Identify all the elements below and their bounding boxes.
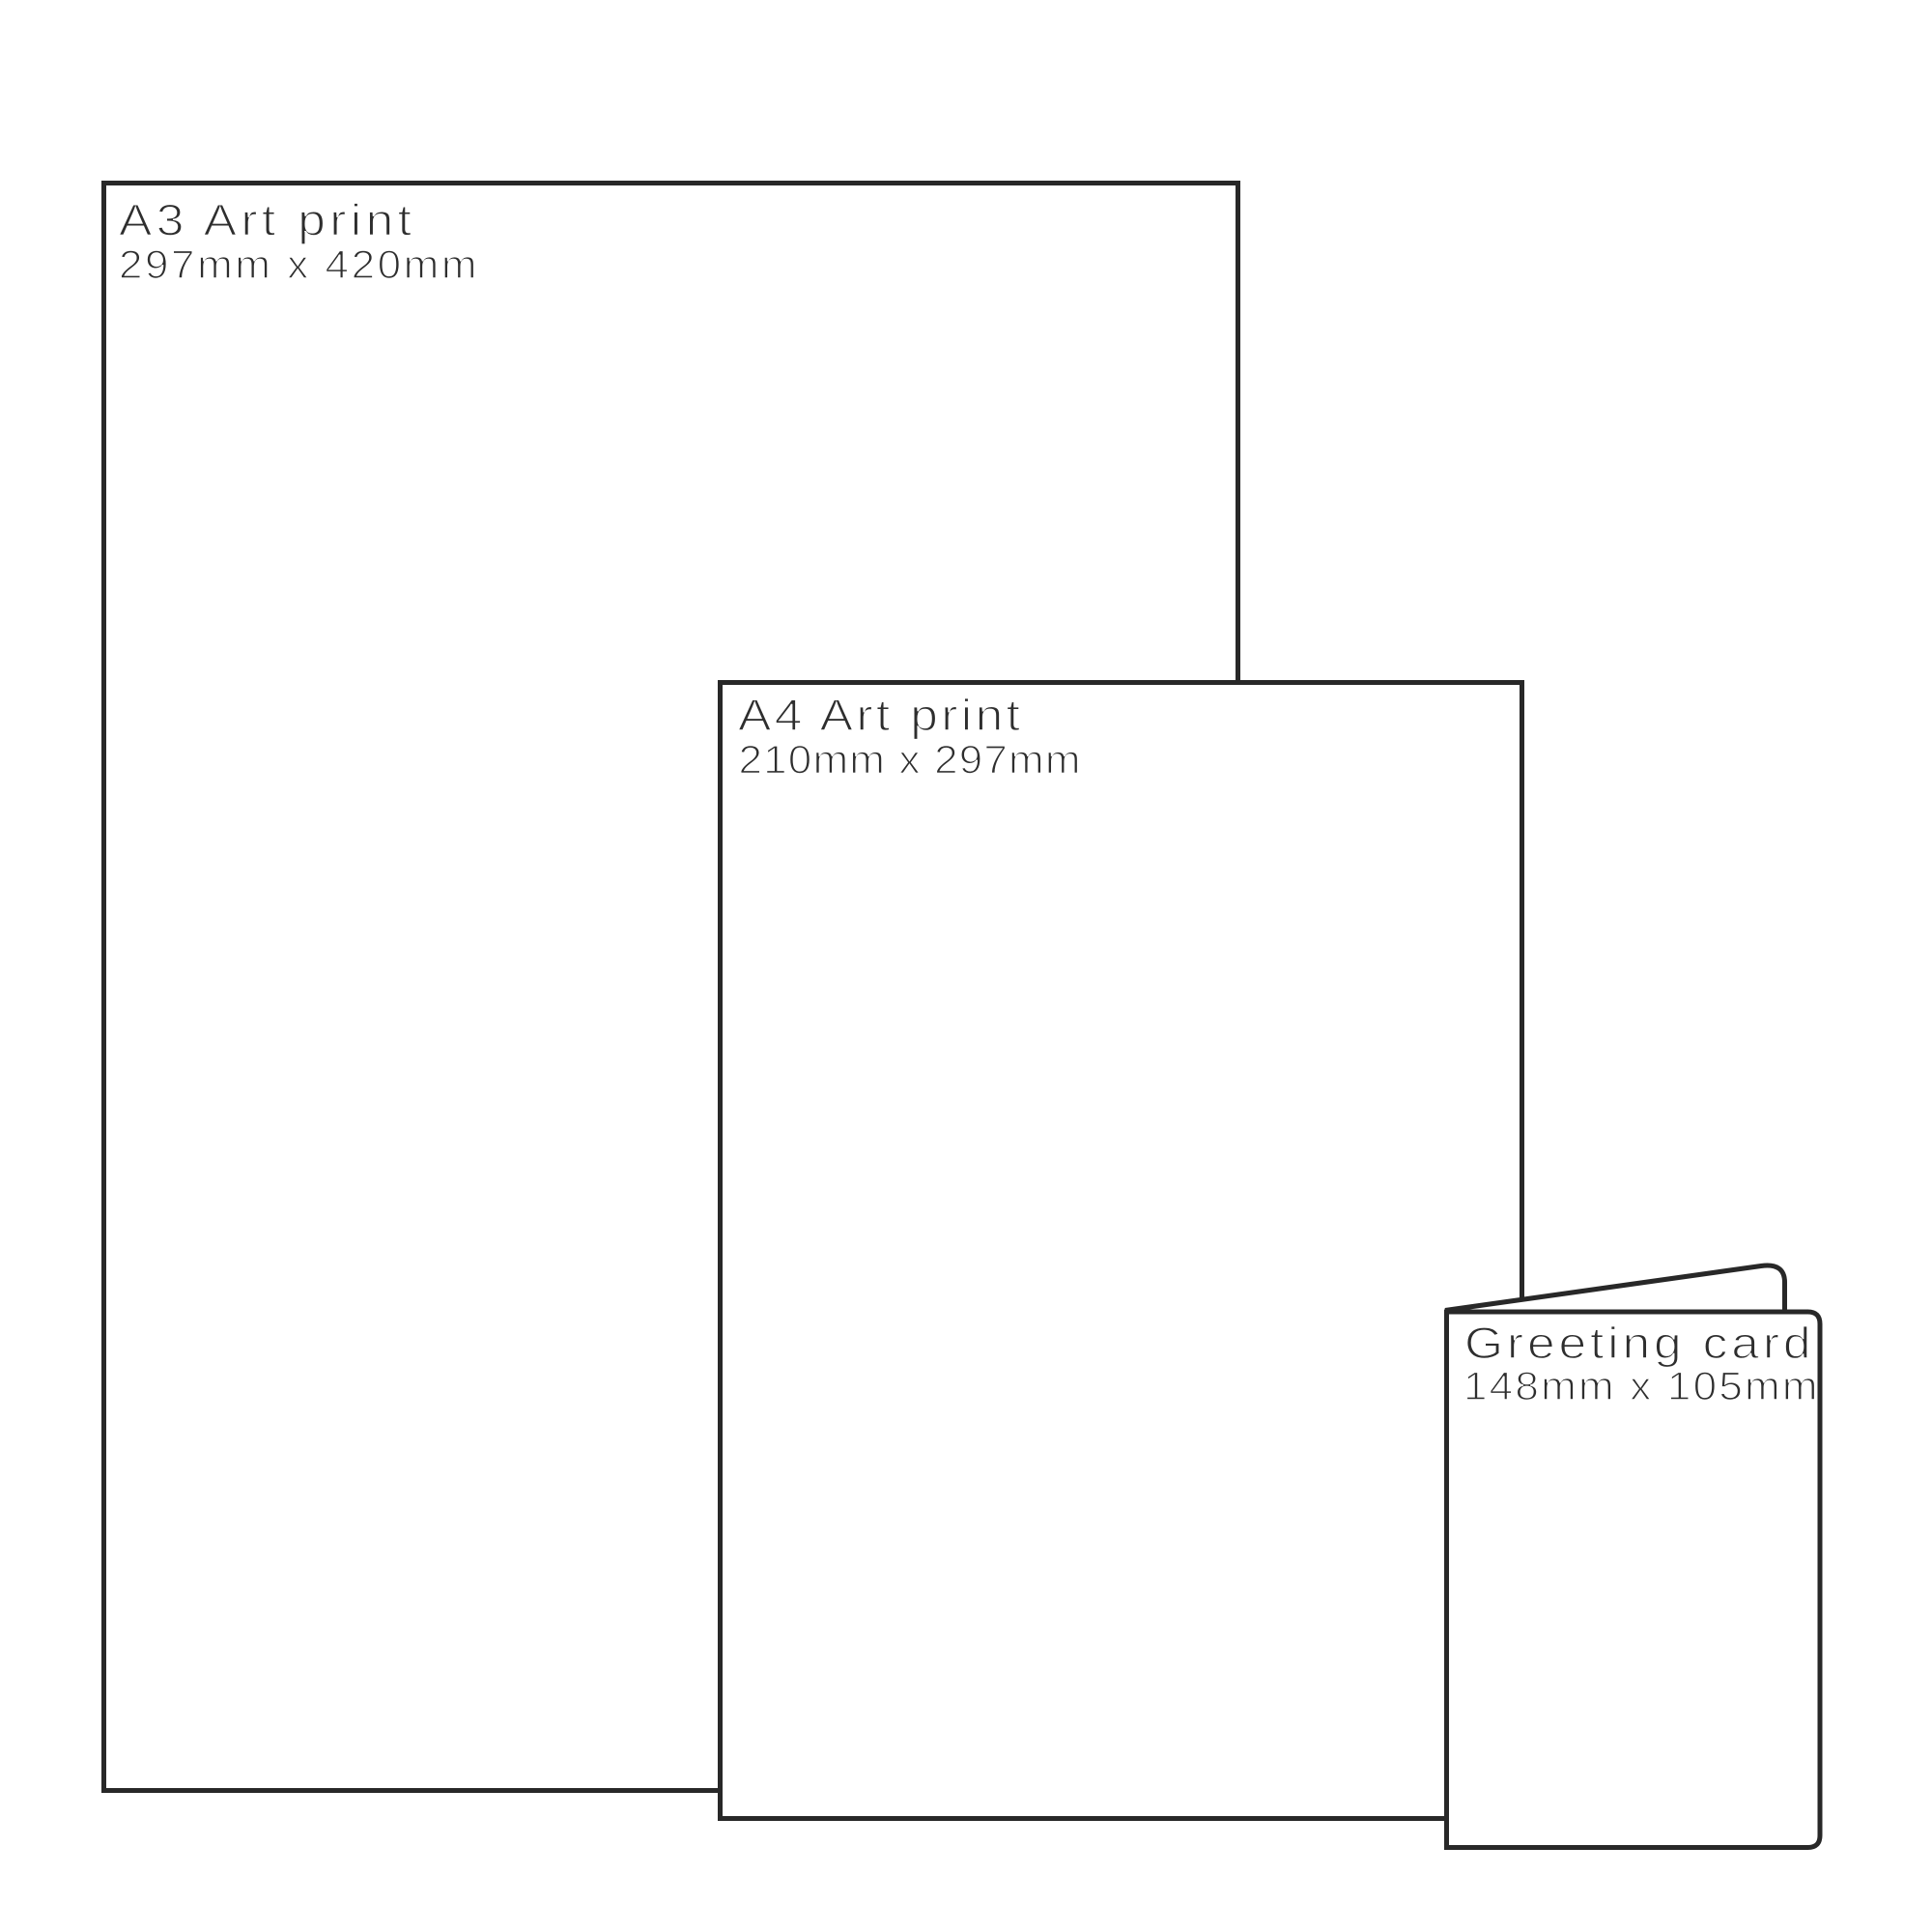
svg-text:A4 Art print: A4 Art print: [738, 690, 1020, 740]
svg-text:297mm x 420mm: 297mm x 420mm: [119, 241, 476, 287]
svg-text:148mm x 105mm: 148mm x 105mm: [1463, 1363, 1818, 1408]
svg-text:210mm x 297mm: 210mm x 297mm: [739, 737, 1081, 782]
svg-text:Greeting card: Greeting card: [1464, 1318, 1811, 1368]
svg-text:A3 Art print: A3 Art print: [119, 195, 412, 245]
